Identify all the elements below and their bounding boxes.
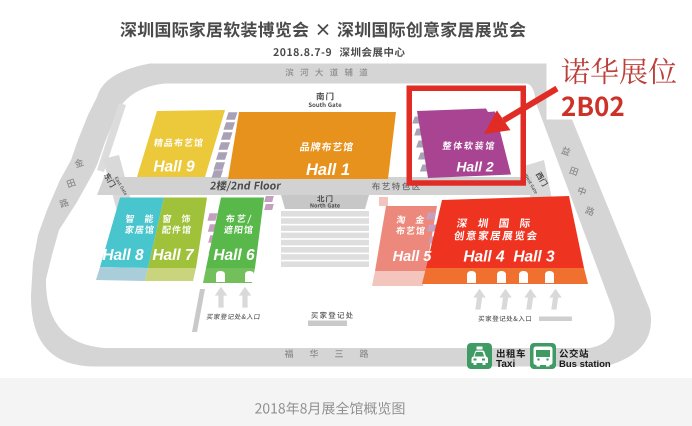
svg-text:Bus station: Bus station: [559, 359, 611, 370]
svg-text:Hall 1: Hall 1: [306, 161, 350, 179]
svg-text:Taxi: Taxi: [496, 359, 515, 370]
svg-text:Hall 8: Hall 8: [102, 247, 144, 264]
svg-text:Hall 2: Hall 2: [456, 159, 494, 175]
svg-text:Hall 6: Hall 6: [213, 247, 255, 264]
svg-text:Hall 9: Hall 9: [153, 159, 195, 176]
svg-text:Hall 5: Hall 5: [393, 249, 433, 265]
svg-text:Hall 4: Hall 4: [463, 249, 505, 266]
svg-text:Hall 7: Hall 7: [152, 247, 195, 264]
svg-text:Hall 3: Hall 3: [513, 249, 555, 266]
